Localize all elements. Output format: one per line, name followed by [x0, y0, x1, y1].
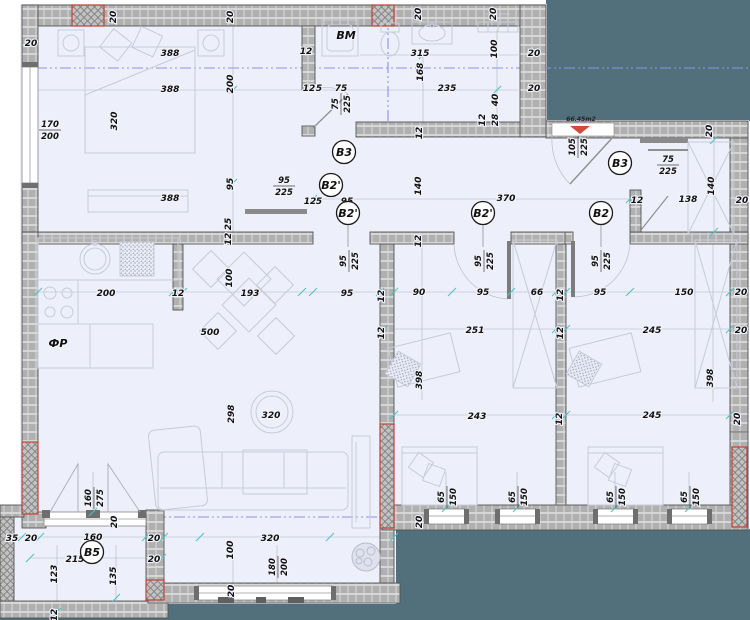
dim-label: 20	[25, 534, 38, 544]
svg-text:275: 275	[96, 489, 106, 507]
dim-label: 35	[6, 534, 19, 544]
wall-bedroom-corridor-a	[302, 26, 315, 90]
window-65-150	[667, 509, 712, 524]
svg-text:225: 225	[275, 188, 293, 198]
dim-label: 140	[414, 177, 424, 196]
svg-text:150: 150	[618, 488, 628, 506]
svg-text:150: 150	[692, 488, 702, 506]
dim-label: 243	[468, 412, 487, 422]
outside-bottom-right	[394, 529, 750, 620]
dim-label: 298	[227, 405, 237, 424]
insulation-living-divider	[380, 424, 394, 528]
svg-text:225: 225	[343, 95, 353, 113]
dim-label: 200	[97, 289, 116, 299]
svg-text:170: 170	[41, 120, 59, 130]
dim-label: 135	[109, 567, 119, 586]
dim-label: 100	[226, 541, 236, 560]
svg-text:75: 75	[662, 155, 674, 165]
benchmark-circle-label: B2'	[338, 207, 357, 220]
wall-bath-bottom	[356, 122, 546, 137]
dim-label: 12	[300, 47, 313, 57]
dim-label: 398	[706, 369, 716, 388]
benchmark-circle: B2'	[320, 174, 343, 197]
insulation-top-a	[72, 5, 104, 26]
dim-label: 12	[304, 197, 317, 207]
wall-left-upper-b	[22, 183, 38, 233]
benchmark-circle: B3	[609, 152, 632, 175]
dim-label: 20	[109, 11, 119, 24]
dim-label: 25	[224, 218, 234, 231]
room-label: ФР	[49, 337, 68, 350]
area-label: 66.45m2	[566, 116, 595, 123]
dim-label: 320	[261, 534, 280, 544]
svg-text:65: 65	[437, 491, 447, 503]
dim-label: 20	[733, 413, 743, 426]
dim-label: 12	[377, 327, 387, 340]
dim-label: 123	[50, 565, 60, 584]
dim-label: 138	[679, 195, 698, 205]
window-65-150	[424, 509, 469, 524]
dim-label: 20	[110, 516, 120, 529]
dim-label: 20	[736, 196, 749, 206]
dim-label: 388	[161, 49, 180, 59]
dim-label: 500	[201, 328, 220, 338]
svg-text:225: 225	[659, 167, 677, 177]
dim-label: 20	[148, 555, 161, 565]
dim-label: 150	[675, 288, 694, 298]
wall-balcony-bottom	[0, 601, 168, 618]
dim-label: 66	[531, 288, 544, 298]
benchmark-circle-label: B5	[84, 546, 100, 559]
room-label: BM	[336, 29, 355, 42]
dim-label: 28	[491, 114, 501, 127]
dim-label: 5	[316, 84, 322, 94]
dim-label: 12	[303, 84, 316, 94]
benchmark-circle-label: B3	[612, 157, 628, 170]
dim-label: 12	[415, 127, 425, 140]
dim-label: 140	[707, 177, 717, 196]
dim-label: 12	[50, 609, 60, 620]
svg-text:95: 95	[591, 255, 601, 267]
dim-label: 20	[415, 516, 425, 529]
svg-text:65: 65	[680, 491, 690, 503]
dim-label: 12	[556, 289, 566, 302]
svg-text:65: 65	[606, 491, 616, 503]
dim-label: 20	[528, 49, 541, 59]
svg-text:200: 200	[280, 558, 290, 576]
dim-label: 20	[414, 8, 424, 21]
dim-label: 20	[25, 39, 38, 49]
dim-label: 20	[489, 8, 499, 21]
benchmark-circle-label: B2	[593, 207, 609, 220]
dim-label: 95	[477, 288, 490, 298]
benchmark-circle-label: B3	[336, 146, 352, 159]
benchmark-circle-label: B2'	[321, 179, 340, 192]
window-65-150	[593, 509, 638, 524]
benchmark-circle-label: B2'	[473, 207, 492, 220]
dim-label: 100	[225, 269, 235, 288]
window-bedroom-left	[22, 62, 38, 188]
floor-plan-svg: 2020202020388123151002038820023520125751…	[0, 0, 750, 620]
svg-text:225: 225	[486, 252, 496, 270]
svg-text:160: 160	[84, 489, 94, 507]
partition-closet-shelf	[640, 138, 688, 143]
dim-label: 20	[148, 534, 161, 544]
dim-label: 12	[377, 290, 387, 303]
dim-label: 193	[241, 289, 260, 299]
svg-text:225: 225	[603, 252, 613, 270]
svg-text:75: 75	[331, 98, 341, 110]
floor-plan-canvas: 2020202020388123151002038820023520125751…	[0, 0, 750, 620]
wall-right-upper	[520, 5, 546, 137]
wall-balcony-left	[0, 517, 14, 603]
dim-label: 12	[414, 235, 424, 248]
svg-text:95: 95	[474, 255, 484, 267]
svg-text:65: 65	[508, 491, 518, 503]
svg-text:150: 150	[520, 488, 530, 506]
dim-label: 320	[262, 411, 281, 421]
dim-label: 12	[556, 327, 566, 340]
dim-label: 20	[735, 326, 748, 336]
dim-label: 245	[643, 326, 662, 336]
dim-label: 388	[161, 85, 180, 95]
svg-text:105: 105	[568, 138, 578, 156]
benchmark-circle: B3	[333, 141, 356, 164]
dim-label: 245	[643, 411, 662, 421]
dim-label: 5	[316, 197, 322, 207]
dim-label: 388	[161, 194, 180, 204]
svg-text:95: 95	[278, 176, 290, 186]
dim-label: 235	[438, 84, 457, 94]
svg-text:150: 150	[449, 488, 459, 506]
dim-label: 12	[172, 289, 185, 299]
dim-label: 315	[411, 49, 430, 59]
dim-label: 370	[497, 194, 516, 204]
dim-label: 95	[594, 288, 607, 298]
dim-label: 20	[705, 125, 715, 138]
dim-label: 95	[226, 178, 236, 191]
outside-bottom-middle	[146, 602, 400, 620]
dim-label: 20	[226, 11, 236, 24]
dim-label: 40	[491, 94, 501, 108]
insulation-left	[22, 442, 38, 514]
dim-label: 398	[415, 371, 425, 390]
wall-mid-top-a	[370, 232, 454, 244]
dim-label: 12	[555, 413, 565, 426]
plant	[352, 543, 380, 571]
svg-text:95: 95	[339, 255, 349, 267]
svg-text:225: 225	[580, 138, 590, 156]
dim-label: 75	[335, 84, 348, 94]
wall-left-middle	[22, 232, 38, 444]
dim-label: 12	[478, 114, 488, 127]
dim-label: 12	[224, 233, 234, 246]
dim-label: 200	[226, 75, 236, 94]
dim-label: 20	[227, 585, 237, 598]
dim-label: 320	[110, 112, 120, 131]
dim-label: 20	[528, 84, 541, 94]
wall-living-bedroom-b	[380, 528, 394, 586]
wall-balcony-top-stub	[0, 505, 24, 517]
svg-text:225: 225	[351, 252, 361, 270]
svg-text:180: 180	[268, 558, 278, 576]
dim-label: 100	[490, 40, 500, 59]
outside-top-right	[546, 0, 750, 121]
dim-label: 90	[413, 288, 426, 298]
dim-label: 12	[631, 196, 644, 206]
dim-label: 95	[341, 289, 354, 299]
insulation-balcony-right	[146, 580, 164, 600]
dim-label: 168	[416, 63, 426, 82]
benchmark-circle: B5	[81, 541, 104, 564]
window-65-150	[495, 509, 540, 524]
dim-label: 251	[466, 326, 485, 336]
partition-bedroom-niche	[245, 209, 307, 214]
svg-text:200: 200	[41, 132, 59, 142]
wall-balcony-right	[146, 510, 164, 582]
wall-left-upper-a	[22, 5, 38, 67]
dim-label: 20	[735, 288, 748, 298]
insulation-right	[732, 447, 747, 527]
